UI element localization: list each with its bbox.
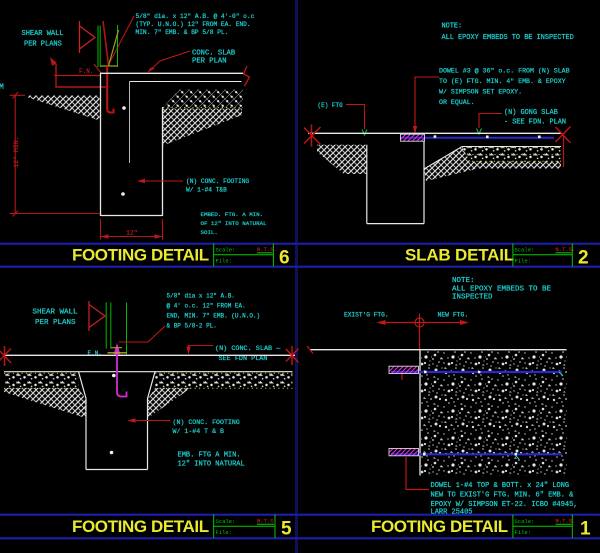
svg-text:5: 5 [281,519,292,540]
svg-text:Scale:: Scale: [515,247,535,254]
svg-text:12": 12" [126,230,138,237]
svg-text:FOOTING DETAIL: FOOTING DETAIL [371,517,508,536]
svg-text:Scale:: Scale: [216,247,236,254]
svg-text:W/ 1-#4 T&B: W/ 1-#4 T&B [186,187,227,194]
svg-text:File:: File: [515,258,532,265]
svg-text:(N) CONC. SLAB —: (N) CONC. SLAB — [215,345,281,353]
svg-text:Scale:: Scale: [216,518,236,525]
svg-text:12" INTO NATURAL: 12" INTO NATURAL [178,461,245,469]
svg-text:END, MIN. 7" EMB. (U.N.O.): END, MIN. 7" EMB. (U.N.O.) [167,313,261,320]
svg-text:FOOTING DETAIL: FOOTING DETAIL [72,246,209,265]
svg-text:W/ SIMPSON SET EPOXY.: W/ SIMPSON SET EPOXY. [439,89,522,96]
svg-text:SOIL.: SOIL. [201,229,218,236]
svg-text:PER PLANS: PER PLANS [24,41,62,49]
svg-text:N.T.S.: N.T.S. [257,517,277,524]
svg-text:DOWEL 1-#4 TOP & BOTT. x 24" L: DOWEL 1-#4 TOP & BOTT. x 24" LONG [431,482,570,490]
svg-text:CONC. SLAB: CONC. SLAB [192,50,236,58]
svg-text:N.T.S.: N.T.S. [257,246,277,253]
svg-text:NEW FTG.: NEW FTG. [438,312,469,319]
svg-text:NOTE:: NOTE: [442,23,463,31]
svg-text:DOWEL #3 @ 36" o.c. FROM (N) S: DOWEL #3 @ 36" o.c. FROM (N) SLAB [439,68,570,75]
svg-text:SHEAR WALL: SHEAR WALL [22,30,64,38]
svg-text:MIN. 7" EMB. & BP 5/8 PL.: MIN. 7" EMB. & BP 5/8 PL. [136,29,229,36]
svg-text:OF 12" INTO NATURAL: OF 12" INTO NATURAL [201,220,268,227]
svg-text:EMB. FTG A MIN.: EMB. FTG A MIN. [178,452,241,460]
svg-text:5/8" dia x 12" A.B.: 5/8" dia x 12" A.B. [167,293,235,300]
svg-text:NOTE:: NOTE: [452,277,475,285]
svg-text:1: 1 [580,519,591,540]
svg-text:INSPECTED: INSPECTED [452,294,493,302]
svg-text:EXIST'G FTG.: EXIST'G FTG. [344,312,389,319]
svg-text:@ 4' o.c. 12" FROM EA.: @ 4' o.c. 12" FROM EA. [167,303,246,310]
svg-text:12" MIN.: 12" MIN. [13,136,20,167]
svg-text:NEW TO EXIST'G FTG. MIN. 6" E: NEW TO EXIST'G FTG. MIN. 6" EMB. & [431,492,575,500]
svg-text:TO (E) FTG. MIN. 4" EMB. & EPO: TO (E) FTG. MIN. 4" EMB. & EPOXY [439,78,566,85]
svg-text:(E) FTG: (E) FTG [318,102,344,109]
svg-text:File:: File: [216,529,233,536]
svg-text:LARR 25405: LARR 25405 [431,509,473,517]
svg-text:ALL EPOXY EMBEDS TO BE INSPECT: ALL EPOXY EMBEDS TO BE INSPECTED [442,34,574,42]
svg-text:N.T.S.: N.T.S. [556,517,576,524]
svg-text:& BP 5/8-2 PL.: & BP 5/8-2 PL. [167,323,217,330]
svg-text:FOOTING DETAIL: FOOTING DETAIL [72,517,209,536]
svg-text:SEE FDN PLAN: SEE FDN PLAN [219,355,268,363]
svg-text:SLAB DETAIL: SLAB DETAIL [405,246,514,265]
svg-text:F.N.: F.N. [79,68,93,75]
svg-text:N.T.S.: N.T.S. [556,246,576,253]
svg-text:EMBED. FTG. A MIN.: EMBED. FTG. A MIN. [201,211,264,218]
svg-text:M: M [0,83,4,92]
svg-text:W/ 1-#4 T & B: W/ 1-#4 T & B [173,428,224,435]
svg-text:PER PLANS: PER PLANS [35,319,76,327]
svg-text:(N) CONC. FOOTING: (N) CONC. FOOTING [186,178,249,185]
svg-text:ALL EPOXY EMBEDS TO BE: ALL EPOXY EMBEDS TO BE [452,286,552,294]
svg-text:- SEE FDN. PLAN: - SEE FDN. PLAN [504,119,566,127]
svg-text:PER PLAN: PER PLAN [192,58,227,66]
svg-text:6: 6 [279,248,290,269]
svg-text:File:: File: [515,529,532,536]
svg-text:(TYP. U.N.O.) 12" FROM EA. END: (TYP. U.N.O.) 12" FROM EA. END. [136,21,251,28]
svg-text:(N) CONC. FOOTING: (N) CONC. FOOTING [173,419,240,426]
svg-text:2: 2 [578,248,589,269]
svg-text:SHEAR WALL: SHEAR WALL [33,309,79,317]
svg-text:5/8" dia. x 12" A.B. @ 4'-0" o: 5/8" dia. x 12" A.B. @ 4'-0" o.c [136,13,255,20]
svg-text:OR EQUAL.: OR EQUAL. [439,99,475,106]
svg-text:(N) GONG SLAB: (N) GONG SLAB [504,109,558,117]
svg-text:File:: File: [216,258,233,265]
svg-text:Scale:: Scale: [515,518,535,525]
